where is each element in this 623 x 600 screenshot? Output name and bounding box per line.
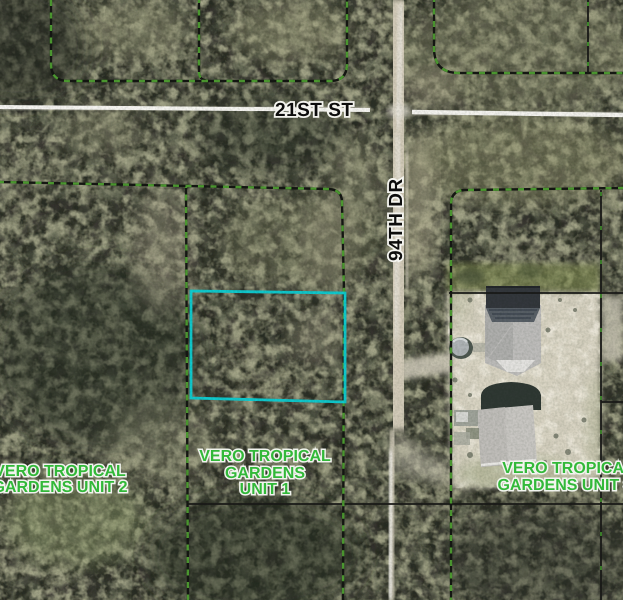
svg-text:VERO TROPICAL: VERO TROPICAL: [0, 463, 126, 480]
svg-text:GARDENS: GARDENS: [225, 465, 305, 482]
svg-text:VERO TROPICAL: VERO TROPICAL: [199, 448, 331, 465]
svg-text:GARDENS UNIT 2: GARDENS UNIT 2: [0, 479, 128, 496]
svg-text:VERO TROPICAL: VERO TROPICAL: [502, 460, 623, 477]
svg-text:21ST ST: 21ST ST: [275, 100, 353, 121]
svg-text:94TH DR: 94TH DR: [386, 178, 407, 261]
svg-text:GARDENS UNIT 3: GARDENS UNIT 3: [497, 477, 623, 494]
svg-text:UNIT 1: UNIT 1: [240, 481, 291, 498]
